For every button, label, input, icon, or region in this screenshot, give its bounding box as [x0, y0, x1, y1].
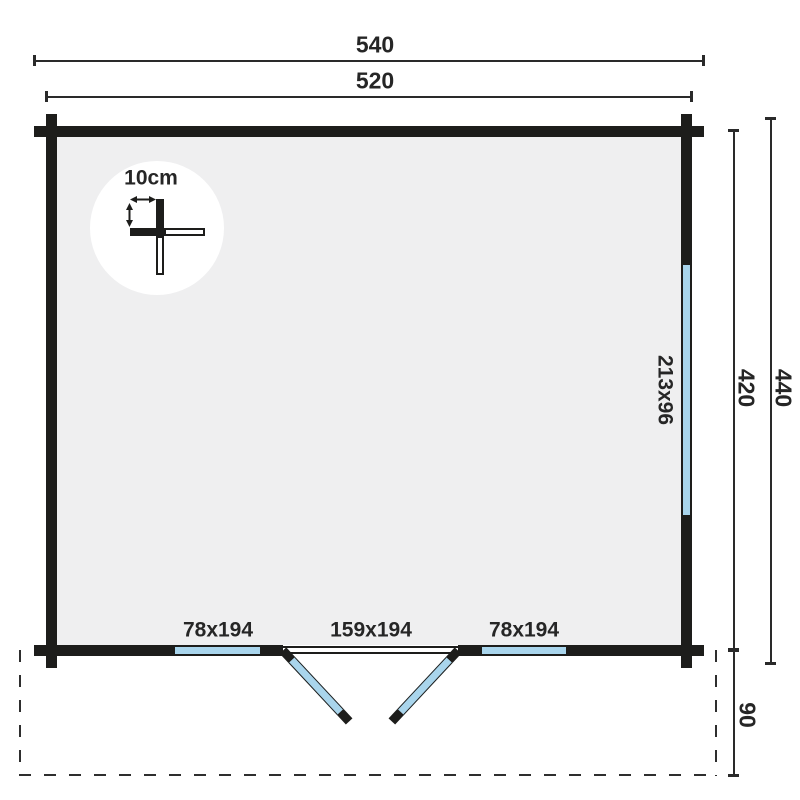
canopy-outline-bottom	[19, 774, 717, 776]
corner-log-top-left-horizontal	[34, 126, 46, 137]
door-leaf-right	[389, 647, 462, 724]
scale-detail-arrows	[115, 190, 175, 235]
door-opening-outer-line	[283, 646, 458, 648]
canopy-outline-left	[19, 650, 21, 776]
door-leaf-right-panel	[397, 656, 452, 714]
scale-detail-label: 10cm	[124, 168, 178, 189]
dimension-label-total-depth: 440	[772, 369, 795, 407]
corner-log-bottom-right-horizontal	[692, 645, 704, 656]
corner-log-bottom-left-horizontal	[34, 645, 46, 656]
canopy-outline-right	[715, 650, 717, 776]
door-jamb-right	[458, 645, 480, 656]
front-right-window	[480, 645, 568, 656]
scale-cross-vertical-outline	[156, 236, 164, 275]
bottom-wall-left-segment	[46, 645, 173, 656]
front-right-window-label: 78x194	[489, 620, 559, 641]
corner-log-top-right-horizontal	[692, 126, 704, 137]
left-wall	[46, 126, 57, 656]
corner-log-top-right-vertical	[681, 114, 692, 126]
dimension-label-canopy-depth: 90	[736, 702, 759, 728]
corner-log-top-left-vertical	[46, 114, 57, 126]
corner-log-bottom-left-vertical	[46, 656, 57, 668]
dimension-line-total-width	[34, 60, 704, 62]
dimension-label-total-width: 540	[356, 34, 394, 57]
dimension-line-wall-width	[46, 96, 692, 98]
bottom-wall-right-segment	[568, 645, 692, 656]
dimension-label-wall-depth: 420	[735, 369, 758, 407]
door-leaf-left-panel	[289, 656, 344, 714]
door-leaf-left	[280, 647, 353, 724]
corner-log-bottom-right-vertical	[681, 656, 692, 668]
front-left-window	[173, 645, 262, 656]
side-window-label: 213x96	[655, 355, 676, 425]
door-label: 159x194	[330, 620, 412, 641]
top-wall	[46, 126, 692, 137]
door-opening-inner-line	[283, 652, 458, 654]
floor-plan-canvas: 540 520 213x96 78x194 159x194 78x194	[0, 0, 800, 800]
door-opening	[283, 645, 458, 656]
side-window	[681, 263, 692, 517]
front-left-window-label: 78x194	[183, 620, 253, 641]
dimension-label-wall-width: 520	[356, 70, 394, 93]
